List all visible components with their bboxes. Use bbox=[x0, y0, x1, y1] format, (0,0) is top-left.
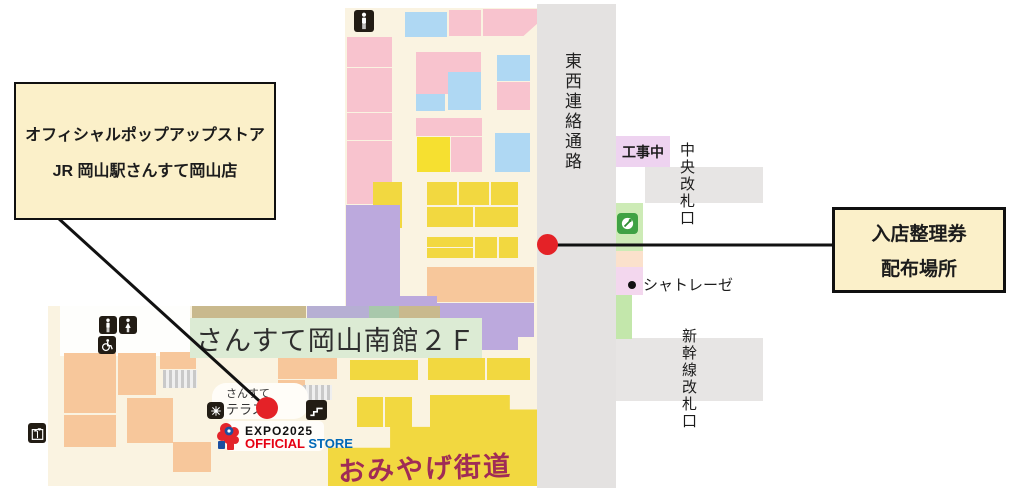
store-callout-line2: JR 岡山駅さんすて岡山店 bbox=[53, 157, 238, 181]
ticket-callout-line2: 配布場所 bbox=[881, 254, 957, 281]
store-location-dot bbox=[256, 397, 278, 419]
ticket-callout-box: 入店整理券 配布場所 bbox=[832, 207, 1006, 293]
ticket-callout-line1: 入店整理券 bbox=[871, 219, 966, 246]
store-callout-line1: オフィシャルポップアップストア bbox=[25, 121, 265, 145]
ticket-location-dot bbox=[537, 234, 558, 255]
store-callout-line bbox=[58, 218, 266, 407]
store-callout-box: オフィシャルポップアップストア JR 岡山駅さんすて岡山店 bbox=[14, 82, 276, 220]
station-floor-map: さんすて岡山南館２Ｆ さんすて テラス EXPO2025 OFFICIAL bbox=[0, 0, 1024, 491]
